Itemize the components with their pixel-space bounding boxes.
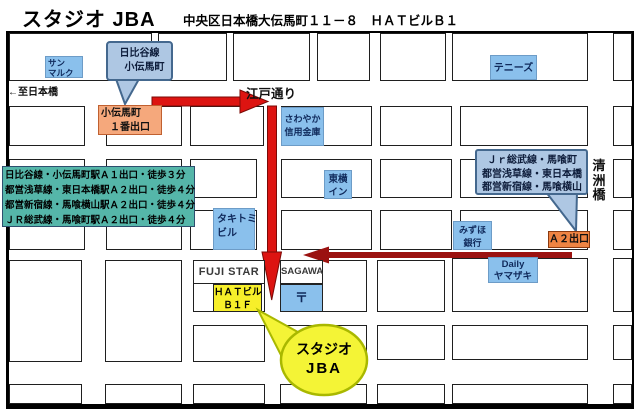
fuji-star-box: FUJI STAR [193,260,265,284]
city-block [377,260,445,312]
city-block [233,33,310,81]
access-info-box: 日比谷線・小伝馬町駅Ａ１出口・徒歩３分 都営浅草線・東日本橋駅Ａ２出口・徒歩４分… [2,166,195,227]
daily-line2: ヤマザキ [489,271,537,283]
city-block [380,210,452,250]
a2-exit-box: Ａ２出口 [548,231,590,248]
access-map: スタジオ JBA 中央区日本橋大伝馬町１１－８ ＨＡＴビルＢ１ ←至日本橋 江戸… [0,0,640,412]
city-block [613,106,632,146]
sagawa-box: SAGAWA [280,260,323,284]
hat-building-box: ＨＡＴビル Ｂ１Ｆ [213,284,262,312]
balloon-text: スタジオ JBA [281,340,367,378]
city-block [9,106,85,146]
daily-line1: Daily [489,259,537,271]
city-block [317,33,370,81]
mizuho-line1: みずほ [454,224,491,237]
toyoko-line1: 東横 [325,173,351,186]
city-block [9,260,82,362]
toyoko-inn-box: 東横 イン [324,170,352,199]
city-block [613,33,632,81]
jr-callout-line: 都営新宿線・馬喰横山 [482,181,586,195]
sawayaka-line2: 信用金庫 [282,126,323,139]
city-block [105,260,182,362]
post-office-box: 〒 [280,284,323,312]
hat-line2: Ｂ１Ｆ [214,299,261,312]
balloon-line2: JBA [281,359,367,378]
tennies-box: テニーズ [490,55,537,80]
jr-callout-line: Ｊｒ総武線・馬喰町 [482,154,586,168]
toyoko-line2: イン [325,186,351,199]
mizuho-line2: 銀行 [454,237,491,250]
access-line: 日比谷線・小伝馬町駅Ａ１出口・徒歩３分 [5,168,194,183]
city-block [377,325,445,360]
city-block [377,384,445,404]
station-callout-line2: 小伝馬町 [108,61,171,75]
takitomi-box: タキトミ ビル [213,208,255,250]
access-line: 都営新宿線・馬喰横山駅Ａ２出口・徒歩４分 [5,198,194,213]
kiyosubashi-char: 清 [591,159,607,174]
sawayaka-line1: さわやか [282,113,323,126]
road-label-kiyosubashi: 清 洲 橋 [591,159,607,203]
address-text: 中央区日本橋大伝馬町１１－８ ＨＡＴビルＢ１ [183,10,458,29]
jr-callout-pointer [546,192,577,231]
city-block [613,384,632,404]
balloon-line1: スタジオ [281,340,367,359]
station-callout-line1: 日比谷線 [108,47,171,61]
city-block [190,106,264,146]
sunmarc-line2: マルク [48,68,82,78]
city-block [380,159,452,198]
jr-callout-box: Ｊｒ総武線・馬喰町 都営浅草線・東日本橋 都営新宿線・馬喰横山 [475,149,588,195]
city-block [613,210,632,250]
map-border-right [632,31,634,409]
city-block [613,325,632,360]
access-line: ＪＲ総武線・馬喰町駅Ａ２出口・徒歩４分 [5,213,194,228]
exit1-line2: １番出口 [101,121,161,135]
station-callout-box: 日比谷線 小伝馬町 [106,41,173,81]
city-block [380,106,452,146]
city-block [105,384,182,404]
daily-yamazaki-box: Daily ヤマザキ [488,257,538,283]
road-label-edo-dori: 江戸通り [246,83,296,102]
city-block [193,384,265,404]
mizuho-box: みずほ 銀行 [453,221,492,250]
city-block [9,384,82,404]
sawayaka-box: さわやか 信用金庫 [281,107,324,146]
map-border-top [6,31,634,33]
sunmarc-box: サン マルク [45,56,83,78]
sunmarc-line1: サン [48,58,82,68]
city-block [190,159,257,198]
city-block [460,106,588,146]
exit1-line1: 小伝馬町 [101,107,161,121]
takitomi-line1: タキトミ [217,213,254,227]
city-block [380,33,446,81]
city-block [281,210,372,250]
map-border-bottom [6,404,634,409]
station-callout-pointer [116,79,139,104]
takitomi-line2: ビル [217,227,254,241]
kiyosubashi-char: 洲 [591,174,607,189]
page-title: スタジオ JBA [22,3,156,32]
city-block [613,159,632,198]
road-label-to-nihonbashi: ←至日本橋 [8,83,58,98]
city-block [452,325,588,360]
city-block [193,325,265,362]
city-block [452,384,588,404]
kodemmacho-exit1-box: 小伝馬町 １番出口 [98,105,162,135]
jr-callout-line: 都営浅草線・東日本橋 [482,168,586,182]
city-block [280,384,367,404]
city-block [613,258,632,312]
kiyosubashi-char: 橋 [591,188,607,203]
access-line: 都営浅草線・東日本橋駅Ａ２出口・徒歩４分 [5,183,194,198]
hat-line1: ＨＡＴビル [214,286,261,299]
